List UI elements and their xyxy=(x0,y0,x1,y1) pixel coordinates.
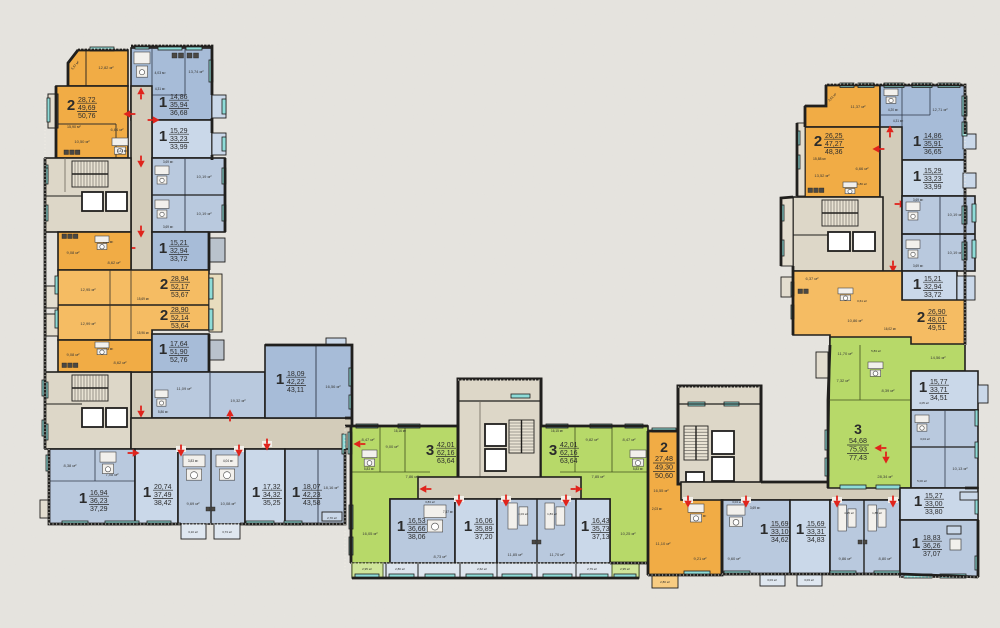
svg-text:4,25 м²: 4,25 м² xyxy=(844,511,854,515)
svg-text:33,31: 33,31 xyxy=(807,529,825,536)
svg-text:3,10 м²: 3,10 м² xyxy=(188,530,198,534)
svg-text:16,05 м²: 16,05 м² xyxy=(362,531,378,536)
svg-text:11,37 м²: 11,37 м² xyxy=(851,104,867,109)
svg-text:48,36: 48,36 xyxy=(825,149,843,156)
svg-text:1: 1 xyxy=(914,493,922,510)
svg-text:47,27: 47,27 xyxy=(825,141,843,148)
svg-text:53,67: 53,67 xyxy=(171,292,189,299)
svg-text:33,23: 33,23 xyxy=(170,136,188,143)
svg-text:9,00 м²: 9,00 м² xyxy=(386,444,400,449)
svg-text:4,31 м²: 4,31 м² xyxy=(155,87,165,91)
svg-text:1,83 м²: 1,83 м² xyxy=(547,512,557,516)
svg-text:5,83 м²: 5,83 м² xyxy=(633,467,643,471)
svg-text:7,32 м²: 7,32 м² xyxy=(837,378,851,383)
svg-text:43,11: 43,11 xyxy=(287,387,304,394)
svg-text:8,62 м²: 8,62 м² xyxy=(114,360,128,365)
svg-text:18,09: 18,09 xyxy=(287,371,305,378)
svg-text:34,62: 34,62 xyxy=(771,537,789,544)
svg-text:35,73: 35,73 xyxy=(592,526,610,533)
svg-text:37,29: 37,29 xyxy=(90,506,108,513)
svg-text:14,86: 14,86 xyxy=(170,94,188,101)
svg-text:43,58: 43,58 xyxy=(303,500,321,507)
svg-text:13,52 м²: 13,52 м² xyxy=(814,173,830,178)
svg-text:2: 2 xyxy=(67,97,75,114)
svg-text:33,99: 33,99 xyxy=(170,144,188,151)
svg-text:1: 1 xyxy=(276,371,284,388)
svg-text:51,90: 51,90 xyxy=(170,349,188,356)
svg-text:10,25 м²: 10,25 м² xyxy=(620,531,636,536)
svg-text:8,47 м²: 8,47 м² xyxy=(623,437,637,442)
svg-text:10,13 м²: 10,13 м² xyxy=(952,466,968,471)
svg-text:9,08 м²: 9,08 м² xyxy=(67,352,81,357)
svg-text:8,47 м²: 8,47 м² xyxy=(362,437,376,442)
svg-text:2,70 м²: 2,70 м² xyxy=(327,516,337,520)
svg-text:8,80 м²: 8,80 м² xyxy=(879,556,893,561)
svg-text:3,03 м²: 3,03 м² xyxy=(767,578,777,582)
svg-text:77,43: 77,43 xyxy=(849,453,867,462)
svg-text:18,83: 18,83 xyxy=(923,535,941,542)
svg-text:15,27: 15,27 xyxy=(925,493,943,500)
svg-text:2: 2 xyxy=(160,276,168,293)
svg-text:15,77: 15,77 xyxy=(930,379,948,386)
svg-text:2,62 м²: 2,62 м² xyxy=(477,567,487,571)
svg-text:0,61 м²: 0,61 м² xyxy=(857,299,867,303)
svg-text:1: 1 xyxy=(919,379,927,396)
svg-text:5,86 м²: 5,86 м² xyxy=(158,410,168,414)
svg-text:11,09 м²: 11,09 м² xyxy=(177,386,193,391)
svg-text:2,95 м²: 2,95 м² xyxy=(362,567,372,571)
svg-text:33,00: 33,00 xyxy=(925,501,943,508)
svg-text:3,03 м²: 3,03 м² xyxy=(804,578,814,582)
svg-text:26,25: 26,25 xyxy=(825,133,843,140)
svg-text:3: 3 xyxy=(854,421,862,437)
svg-text:32,94: 32,94 xyxy=(924,284,942,291)
svg-text:16,55 м²: 16,55 м² xyxy=(653,488,669,493)
svg-text:2: 2 xyxy=(917,309,925,326)
svg-text:2,79 м²: 2,79 м² xyxy=(587,567,597,571)
svg-text:2,80 м²: 2,80 м² xyxy=(395,567,405,571)
svg-text:9,60 м²: 9,60 м² xyxy=(728,556,742,561)
svg-text:37,07: 37,07 xyxy=(923,551,941,558)
svg-text:17,64: 17,64 xyxy=(170,341,188,348)
svg-text:12,71 м²: 12,71 м² xyxy=(932,107,948,112)
svg-text:9,82 м²: 9,82 м² xyxy=(586,437,600,442)
svg-text:15,21: 15,21 xyxy=(170,240,188,247)
svg-text:62,16: 62,16 xyxy=(560,450,578,457)
svg-text:2,03 м²: 2,03 м² xyxy=(652,507,662,511)
svg-text:37,13: 37,13 xyxy=(592,534,610,541)
svg-text:7,85 м²: 7,85 м² xyxy=(592,474,606,479)
svg-text:52,14: 52,14 xyxy=(171,315,189,322)
svg-text:9,21 м²: 9,21 м² xyxy=(694,556,708,561)
svg-text:1,85 м²: 1,85 м² xyxy=(872,511,882,515)
svg-text:33,71: 33,71 xyxy=(930,387,948,394)
svg-text:10,08 м²: 10,08 м² xyxy=(220,501,236,506)
svg-text:13,74 м²: 13,74 м² xyxy=(188,69,204,74)
svg-text:6,37 м²: 6,37 м² xyxy=(806,276,820,281)
svg-text:19,32 м²: 19,32 м² xyxy=(230,398,246,403)
svg-text:4,04 м²: 4,04 м² xyxy=(223,459,233,463)
svg-text:32,94: 32,94 xyxy=(170,248,188,255)
svg-text:1: 1 xyxy=(159,240,167,257)
svg-text:8,39 м²: 8,39 м² xyxy=(882,388,896,393)
svg-text:34,32: 34,32 xyxy=(263,492,281,499)
svg-text:15,69: 15,69 xyxy=(807,521,825,528)
svg-text:16,06: 16,06 xyxy=(475,518,493,525)
svg-text:28,72: 28,72 xyxy=(78,97,96,104)
svg-text:10,86 м²: 10,86 м² xyxy=(847,318,863,323)
svg-text:18,07: 18,07 xyxy=(303,484,321,491)
svg-text:10,19 м²: 10,19 м² xyxy=(196,211,212,216)
svg-text:37,49: 37,49 xyxy=(154,492,172,499)
svg-text:5,83 м²: 5,83 м² xyxy=(364,467,374,471)
svg-text:35,89: 35,89 xyxy=(475,526,493,533)
svg-text:63,64: 63,64 xyxy=(560,458,578,465)
svg-text:36,66: 36,66 xyxy=(408,526,426,533)
svg-text:36,65: 36,65 xyxy=(924,149,942,156)
svg-text:4,05 м²: 4,05 м² xyxy=(919,401,929,405)
svg-text:15,29: 15,29 xyxy=(924,168,942,175)
svg-text:63,64: 63,64 xyxy=(437,458,455,465)
svg-text:42,01: 42,01 xyxy=(560,442,578,449)
svg-text:9,69 м²: 9,69 м² xyxy=(187,501,201,506)
svg-text:1,80 м²: 1,80 м² xyxy=(857,182,867,186)
svg-text:1: 1 xyxy=(143,484,151,501)
svg-text:42,23: 42,23 xyxy=(303,492,321,499)
svg-text:1: 1 xyxy=(912,535,920,552)
svg-text:37,20: 37,20 xyxy=(475,534,493,541)
svg-text:16,15 м²: 16,15 м² xyxy=(551,429,563,433)
svg-text:3,69 м²: 3,69 м² xyxy=(163,225,173,229)
svg-text:1: 1 xyxy=(159,94,167,111)
svg-text:11,70 м²: 11,70 м² xyxy=(550,552,566,557)
svg-text:7,57 м²: 7,57 м² xyxy=(443,510,453,514)
svg-text:3,83 м²: 3,83 м² xyxy=(425,500,435,504)
svg-text:35,94: 35,94 xyxy=(170,102,188,109)
svg-text:15,96 м²: 15,96 м² xyxy=(137,331,149,335)
svg-text:3,83 м²: 3,83 м² xyxy=(188,459,198,463)
svg-text:52,76: 52,76 xyxy=(170,357,188,364)
svg-text:16,16 м²: 16,16 м² xyxy=(394,429,406,433)
svg-text:38,42: 38,42 xyxy=(154,500,172,507)
svg-text:6,66 м²: 6,66 м² xyxy=(856,166,870,171)
svg-text:3,69 м²: 3,69 м² xyxy=(750,506,760,510)
svg-text:4,20 м²: 4,20 м² xyxy=(888,108,898,112)
svg-text:15,69 м²: 15,69 м² xyxy=(137,297,149,301)
svg-text:9,08 м²: 9,08 м² xyxy=(67,250,81,255)
svg-text:36,68: 36,68 xyxy=(170,110,188,117)
svg-text:3: 3 xyxy=(549,442,557,459)
svg-text:15,69: 15,69 xyxy=(771,521,789,528)
svg-text:35,91: 35,91 xyxy=(924,141,942,148)
svg-text:33,10: 33,10 xyxy=(771,529,789,536)
svg-text:36,23: 36,23 xyxy=(90,498,108,505)
svg-text:10,19 м²: 10,19 м² xyxy=(947,212,963,217)
svg-text:20,74: 20,74 xyxy=(154,484,172,491)
svg-text:16,56 м²: 16,56 м² xyxy=(325,384,341,389)
svg-text:16,53: 16,53 xyxy=(408,518,426,525)
svg-text:33,23: 33,23 xyxy=(924,176,942,183)
svg-text:62,16: 62,16 xyxy=(437,450,455,457)
svg-text:9,86 м²: 9,86 м² xyxy=(839,556,853,561)
svg-text:1: 1 xyxy=(292,484,300,501)
svg-text:28,34 м²: 28,34 м² xyxy=(877,474,893,479)
svg-text:8,62 м²: 8,62 м² xyxy=(108,260,122,265)
svg-text:2: 2 xyxy=(814,133,822,150)
svg-text:3,83 м²: 3,83 м² xyxy=(117,149,127,153)
svg-text:3,69 м²: 3,69 м² xyxy=(913,264,923,268)
svg-text:53,64: 53,64 xyxy=(171,323,189,330)
svg-text:3,69 м²: 3,69 м² xyxy=(913,198,923,202)
svg-text:1: 1 xyxy=(913,276,921,293)
svg-text:2,95 м²: 2,95 м² xyxy=(620,567,630,571)
svg-text:50,76: 50,76 xyxy=(78,113,96,120)
svg-text:1: 1 xyxy=(252,484,260,501)
svg-text:15,90 м²: 15,90 м² xyxy=(67,125,81,129)
svg-text:15,21: 15,21 xyxy=(924,276,942,283)
svg-text:12,82 м²: 12,82 м² xyxy=(98,65,114,70)
svg-text:3,04 м²: 3,04 м² xyxy=(732,500,742,504)
svg-text:49,51: 49,51 xyxy=(928,325,946,332)
svg-text:1: 1 xyxy=(159,128,167,145)
svg-text:49,69: 49,69 xyxy=(78,105,96,112)
svg-text:1: 1 xyxy=(913,133,921,150)
svg-text:35,25: 35,25 xyxy=(263,500,281,507)
svg-text:33,99: 33,99 xyxy=(924,184,942,191)
svg-text:5,00 м²: 5,00 м² xyxy=(917,479,927,483)
svg-text:3,73 м²: 3,73 м² xyxy=(222,530,232,534)
svg-text:1: 1 xyxy=(397,518,405,535)
svg-text:3,04 м²: 3,04 м² xyxy=(920,437,930,441)
svg-text:1: 1 xyxy=(79,490,87,507)
svg-text:11,10 м²: 11,10 м² xyxy=(656,541,672,546)
svg-text:12,95 м²: 12,95 м² xyxy=(80,287,96,292)
svg-text:26,90: 26,90 xyxy=(928,309,946,316)
svg-text:7,86 м²: 7,86 м² xyxy=(406,474,420,479)
svg-text:1: 1 xyxy=(159,341,167,358)
svg-text:14,86: 14,86 xyxy=(924,133,942,140)
svg-text:4,03 м²: 4,03 м² xyxy=(154,71,166,75)
svg-text:48,01: 48,01 xyxy=(928,317,946,324)
svg-text:1: 1 xyxy=(464,518,472,535)
svg-text:16,94: 16,94 xyxy=(90,490,108,497)
svg-text:8,73 м²: 8,73 м² xyxy=(434,554,448,559)
svg-text:52,17: 52,17 xyxy=(171,284,189,291)
svg-text:6,64 м²: 6,64 м² xyxy=(111,127,125,132)
svg-text:16,02 м²: 16,02 м² xyxy=(884,327,896,331)
svg-text:38,06: 38,06 xyxy=(408,534,426,541)
svg-text:3,69 м²: 3,69 м² xyxy=(163,160,173,164)
svg-text:18,16 м²: 18,16 м² xyxy=(323,485,339,490)
svg-text:11,70 м²: 11,70 м² xyxy=(838,351,854,356)
svg-text:50,60: 50,60 xyxy=(655,471,673,480)
svg-text:12,99 м²: 12,99 м² xyxy=(80,321,96,326)
svg-text:1: 1 xyxy=(796,521,804,538)
svg-text:10,19 м²: 10,19 м² xyxy=(947,250,963,255)
svg-text:2: 2 xyxy=(660,439,668,455)
svg-text:1: 1 xyxy=(581,518,589,535)
svg-text:42,22: 42,22 xyxy=(287,379,305,386)
svg-text:3: 3 xyxy=(426,442,434,459)
svg-text:16,43: 16,43 xyxy=(592,518,610,525)
svg-text:34,83: 34,83 xyxy=(807,537,825,544)
svg-text:2,80 м²: 2,80 м² xyxy=(660,580,670,584)
svg-text:5,83 м²: 5,83 м² xyxy=(871,349,881,353)
svg-text:4,31 м²: 4,31 м² xyxy=(893,119,903,123)
svg-text:15,29: 15,29 xyxy=(170,128,188,135)
svg-text:28,90: 28,90 xyxy=(171,307,189,314)
svg-text:33,80: 33,80 xyxy=(925,509,943,516)
svg-text:4,03 м²: 4,03 м² xyxy=(518,512,528,516)
svg-text:36,26: 36,26 xyxy=(923,543,941,550)
svg-text:15,88 м²: 15,88 м² xyxy=(813,157,827,161)
svg-text:11,85 м²: 11,85 м² xyxy=(508,552,524,557)
svg-text:28,94: 28,94 xyxy=(171,276,189,283)
svg-text:17,32: 17,32 xyxy=(263,484,281,491)
svg-text:2: 2 xyxy=(160,307,168,324)
svg-text:42,01: 42,01 xyxy=(437,442,455,449)
svg-text:34,51: 34,51 xyxy=(930,395,948,402)
svg-text:33,72: 33,72 xyxy=(924,292,942,299)
svg-text:8,38 м²: 8,38 м² xyxy=(64,463,78,468)
svg-text:33,72: 33,72 xyxy=(170,256,188,263)
svg-text:10,50 м²: 10,50 м² xyxy=(74,139,90,144)
svg-text:10,19 м²: 10,19 м² xyxy=(196,174,212,179)
svg-text:14,56 м²: 14,56 м² xyxy=(930,355,946,360)
svg-text:1: 1 xyxy=(913,168,921,185)
svg-text:1: 1 xyxy=(760,521,768,538)
